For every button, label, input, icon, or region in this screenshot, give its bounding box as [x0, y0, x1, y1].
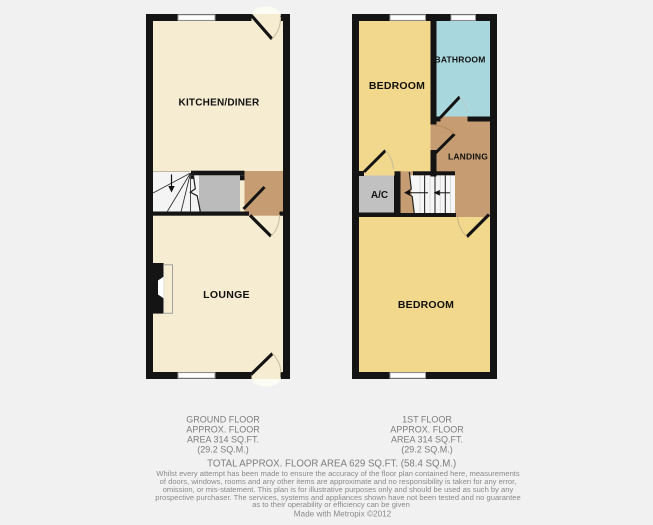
svg-text:(29.2 SQ.M.): (29.2 SQ.M.)	[197, 445, 249, 455]
svg-text:AREA 314 SQ.FT.: AREA 314 SQ.FT.	[187, 435, 259, 445]
svg-text:BEDROOM: BEDROOM	[398, 299, 454, 311]
svg-text:Made with Metropix ©2012: Made with Metropix ©2012	[294, 509, 392, 518]
svg-text:APPROX. FLOOR: APPROX. FLOOR	[186, 425, 260, 435]
svg-text:KITCHEN/DINER: KITCHEN/DINER	[179, 98, 261, 109]
svg-text:LANDING: LANDING	[448, 152, 488, 162]
svg-text:AREA 314 SQ.FT.: AREA 314 SQ.FT.	[391, 435, 463, 445]
svg-text:A/C: A/C	[371, 190, 388, 201]
svg-text:BATHROOM: BATHROOM	[434, 55, 485, 65]
svg-text:BEDROOM: BEDROOM	[369, 80, 425, 92]
svg-text:LOUNGE: LOUNGE	[203, 289, 250, 301]
svg-text:APPROX. FLOOR: APPROX. FLOOR	[390, 425, 464, 435]
svg-text:GROUND FLOOR: GROUND FLOOR	[186, 415, 260, 425]
svg-text:1ST FLOOR: 1ST FLOOR	[402, 415, 452, 425]
svg-text:as to their operability or eff: as to their operability or efficiency ca…	[252, 500, 410, 509]
svg-text:(29.2 SQ.M.): (29.2 SQ.M.)	[401, 445, 453, 455]
svg-text:TOTAL APPROX. FLOOR AREA 629 S: TOTAL APPROX. FLOOR AREA 629 SQ.FT. (58.…	[207, 459, 456, 470]
